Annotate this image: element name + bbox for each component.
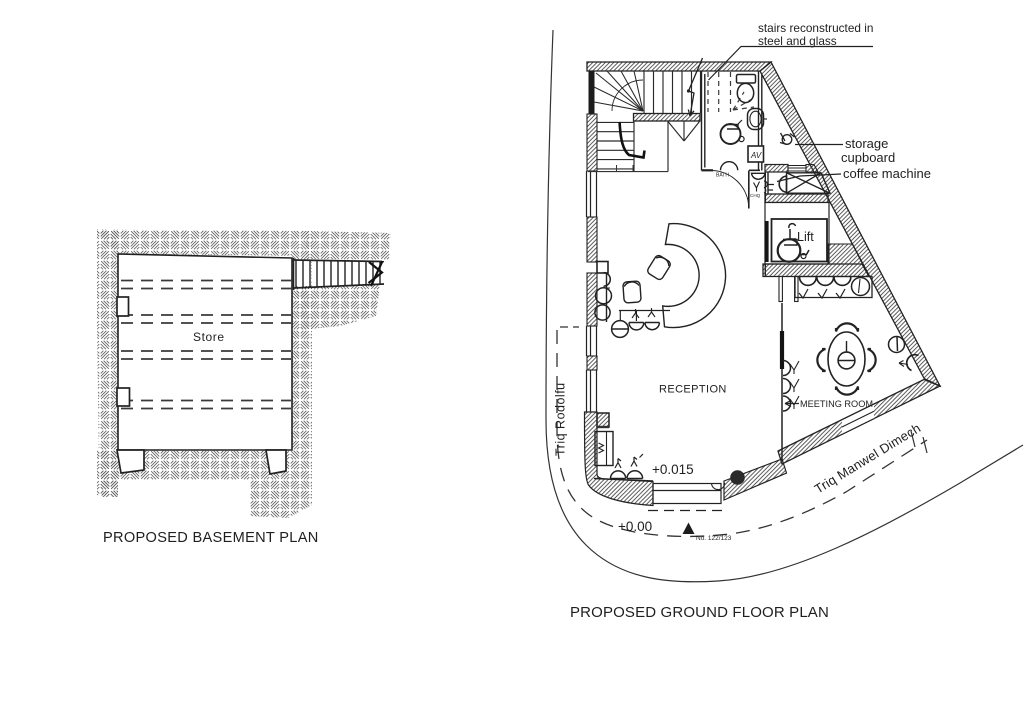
svg-text:stairs reconstructed in: stairs reconstructed in	[758, 21, 873, 35]
svg-text:MEETING ROOM: MEETING ROOM	[800, 399, 873, 409]
svg-text:Triq Rodolfu: Triq Rodolfu	[554, 382, 568, 456]
svg-text:cupboard: cupboard	[841, 150, 895, 165]
svg-text:Lift: Lift	[797, 230, 814, 244]
svg-text:RECEPTION: RECEPTION	[659, 384, 727, 396]
svg-text:Store: Store	[193, 330, 225, 344]
svg-text:PROPOSED GROUND FLOOR PLAN: PROPOSED GROUND FLOOR PLAN	[570, 604, 829, 621]
svg-text:coffee machine: coffee machine	[843, 166, 931, 181]
svg-text:AV: AV	[750, 151, 762, 160]
svg-text:CHQ: CHQ	[750, 193, 761, 198]
svg-text:PROPOSED BASEMENT PLAN: PROPOSED BASEMENT PLAN	[103, 530, 319, 546]
svg-text:BATH: BATH	[716, 173, 729, 179]
svg-text:No. 122/123: No. 122/123	[696, 535, 732, 542]
svg-text:storage: storage	[845, 136, 888, 151]
svg-text:+0.00: +0.00	[618, 519, 652, 534]
svg-text:+0.015: +0.015	[652, 462, 694, 477]
